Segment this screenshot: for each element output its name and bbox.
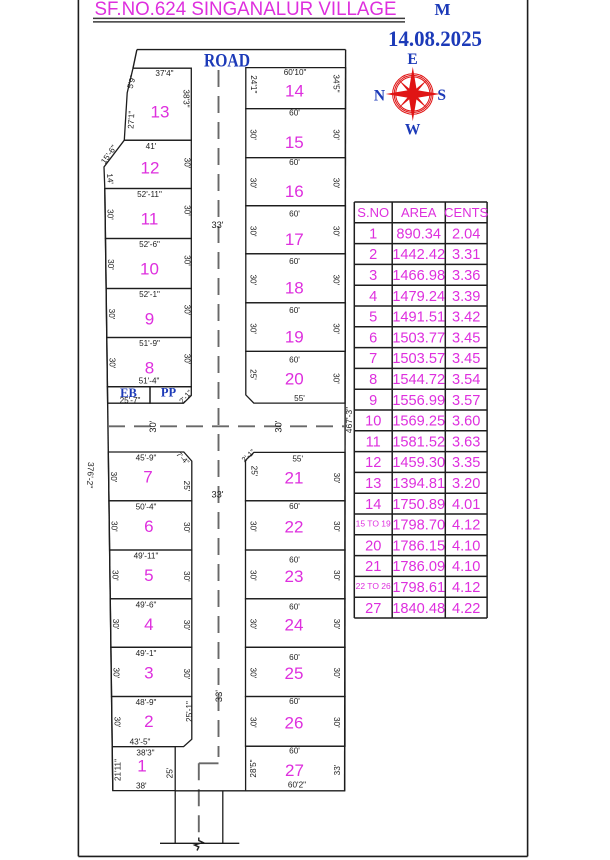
- svg-text:60': 60': [289, 356, 300, 365]
- svg-text:27: 27: [285, 761, 304, 780]
- svg-text:18: 18: [285, 278, 304, 297]
- svg-text:4.10: 4.10: [452, 538, 480, 554]
- svg-text:30': 30': [249, 178, 258, 189]
- svg-text:1: 1: [369, 226, 377, 242]
- svg-text:E: E: [407, 51, 417, 68]
- svg-text:30': 30': [249, 668, 258, 679]
- svg-text:467'-3": 467'-3": [344, 407, 354, 433]
- svg-text:25'-7": 25'-7": [120, 396, 141, 405]
- svg-text:1442.42: 1442.42: [392, 247, 445, 263]
- svg-text:8: 8: [369, 372, 377, 388]
- svg-text:30': 30': [112, 668, 121, 679]
- svg-text:49'-1": 49'-1": [136, 649, 157, 658]
- svg-text:1581.52: 1581.52: [392, 434, 445, 450]
- svg-text:60': 60': [289, 209, 300, 218]
- svg-text:20: 20: [365, 538, 381, 554]
- svg-text:33': 33': [214, 690, 224, 702]
- svg-text:3.31: 3.31: [452, 247, 480, 263]
- svg-text:PP: PP: [161, 385, 177, 399]
- svg-text:25': 25': [182, 481, 191, 492]
- svg-text:5: 5: [369, 310, 377, 326]
- svg-text:3.54: 3.54: [452, 372, 480, 388]
- svg-text:30': 30': [249, 619, 258, 630]
- svg-text:30': 30': [332, 521, 341, 532]
- svg-text:1544.72: 1544.72: [392, 372, 445, 388]
- svg-text:2: 2: [144, 712, 153, 731]
- svg-text:33': 33': [211, 220, 223, 230]
- svg-text:9: 9: [145, 310, 154, 329]
- svg-text:30': 30': [332, 473, 341, 484]
- svg-text:30': 30': [332, 619, 341, 630]
- svg-text:1503.77: 1503.77: [392, 330, 445, 346]
- svg-text:13: 13: [151, 103, 170, 122]
- svg-text:5: 5: [144, 566, 153, 585]
- svg-text:11: 11: [141, 210, 159, 229]
- svg-text:1394.81: 1394.81: [392, 476, 445, 492]
- svg-text:30': 30': [106, 259, 115, 270]
- svg-text:14': 14': [105, 173, 115, 185]
- svg-text:27'1": 27'1": [126, 110, 136, 129]
- svg-text:21: 21: [365, 559, 381, 575]
- svg-text:38'3": 38'3": [182, 89, 191, 107]
- svg-text:1503.57: 1503.57: [392, 351, 445, 367]
- svg-text:51'-4": 51'-4": [139, 377, 160, 386]
- svg-text:3.60: 3.60: [452, 414, 480, 430]
- svg-text:27: 27: [365, 601, 381, 617]
- svg-text:7'-4": 7'-4": [174, 450, 191, 467]
- svg-text:1798.61: 1798.61: [392, 580, 445, 596]
- svg-text:3.35: 3.35: [452, 455, 480, 471]
- svg-text:23: 23: [285, 567, 304, 586]
- svg-text:30': 30': [249, 521, 258, 532]
- svg-text:60': 60': [289, 257, 300, 266]
- svg-text:4.12: 4.12: [452, 518, 480, 534]
- svg-text:7: 7: [369, 351, 377, 367]
- svg-text:13: 13: [365, 476, 381, 492]
- svg-text:11: 11: [366, 434, 381, 450]
- svg-text:3: 3: [144, 663, 153, 682]
- svg-text:1786.15: 1786.15: [392, 538, 445, 554]
- svg-text:34'5": 34'5": [331, 74, 340, 92]
- svg-text:30': 30': [182, 669, 191, 680]
- svg-text:3.20: 3.20: [452, 476, 480, 492]
- svg-text:3.39: 3.39: [452, 289, 480, 305]
- svg-text:3: 3: [369, 268, 377, 284]
- svg-text:3.63: 3.63: [452, 434, 480, 450]
- svg-text:30': 30': [110, 521, 119, 532]
- svg-text:30': 30': [182, 522, 191, 533]
- svg-text:2.04: 2.04: [452, 226, 480, 242]
- svg-text:30': 30': [183, 158, 192, 169]
- svg-text:24'1": 24'1": [249, 75, 258, 93]
- svg-text:25'-1": 25'-1": [185, 701, 194, 722]
- svg-text:3.57: 3.57: [452, 393, 480, 409]
- svg-text:55': 55': [294, 394, 305, 403]
- svg-text:30': 30': [249, 129, 258, 140]
- svg-text:2'-1": 2'-1": [240, 447, 257, 464]
- svg-text:15: 15: [285, 133, 304, 152]
- svg-text:25': 25': [249, 369, 258, 380]
- svg-text:4.12: 4.12: [452, 580, 480, 596]
- svg-text:W: W: [405, 122, 421, 139]
- svg-text:7: 7: [143, 468, 152, 487]
- svg-text:60': 60': [289, 556, 300, 565]
- svg-text:60': 60': [289, 697, 300, 706]
- svg-text:3.36: 3.36: [452, 268, 480, 284]
- svg-text:CENTS: CENTS: [444, 205, 488, 220]
- svg-text:38'3": 38'3": [136, 748, 154, 757]
- svg-text:24: 24: [285, 616, 304, 635]
- svg-text:38': 38': [136, 782, 147, 791]
- svg-text:2: 2: [369, 247, 377, 263]
- svg-text:30': 30': [183, 305, 192, 316]
- svg-text:30': 30': [182, 620, 191, 631]
- svg-text:16: 16: [285, 182, 304, 201]
- svg-text:1750.89: 1750.89: [392, 497, 445, 513]
- svg-text:N: N: [374, 87, 385, 104]
- svg-text:14: 14: [285, 82, 304, 101]
- svg-text:30': 30': [109, 472, 118, 483]
- svg-text:890.34: 890.34: [396, 226, 441, 242]
- svg-text:22: 22: [285, 518, 304, 537]
- svg-text:60': 60': [289, 746, 300, 755]
- svg-text:1466.98: 1466.98: [392, 268, 445, 284]
- svg-text:30': 30': [249, 226, 258, 237]
- svg-text:1459.30: 1459.30: [392, 455, 445, 471]
- svg-text:3.45: 3.45: [452, 351, 480, 367]
- svg-text:1840.48: 1840.48: [392, 601, 445, 617]
- svg-text:30': 30': [332, 717, 341, 728]
- svg-text:60': 60': [289, 108, 300, 117]
- svg-text:60': 60': [289, 158, 300, 167]
- svg-text:5'9": 5'9": [126, 74, 138, 90]
- svg-text:S.NO: S.NO: [357, 205, 389, 220]
- svg-text:1798.70: 1798.70: [392, 518, 445, 534]
- svg-text:33': 33': [333, 764, 342, 775]
- svg-text:30': 30': [107, 309, 116, 320]
- svg-text:37'4": 37'4": [155, 69, 173, 78]
- svg-text:60': 60': [289, 602, 300, 611]
- svg-text:ROAD: ROAD: [204, 51, 250, 72]
- svg-text:M: M: [434, 0, 450, 19]
- svg-text:1: 1: [137, 757, 146, 776]
- svg-text:1479.24: 1479.24: [392, 289, 445, 305]
- svg-text:376'-2": 376'-2": [85, 462, 96, 489]
- svg-text:3.42: 3.42: [452, 310, 480, 326]
- svg-text:55': 55': [292, 455, 303, 464]
- svg-text:4.22: 4.22: [452, 601, 480, 617]
- svg-text:60'10": 60'10": [284, 68, 307, 77]
- svg-text:60': 60': [289, 653, 300, 662]
- svg-text:30': 30': [249, 323, 258, 334]
- svg-text:30': 30': [332, 570, 341, 581]
- svg-text:30': 30': [183, 354, 192, 365]
- svg-text:30': 30': [108, 358, 117, 369]
- svg-text:14: 14: [365, 497, 381, 513]
- svg-text:30': 30': [249, 717, 258, 728]
- svg-text:41': 41': [146, 142, 157, 151]
- svg-text:45'-9": 45'-9": [136, 454, 157, 463]
- svg-text:22 TO 26: 22 TO 26: [356, 581, 391, 591]
- svg-text:4.01: 4.01: [452, 497, 480, 513]
- svg-text:60': 60': [289, 502, 300, 511]
- svg-text:30': 30': [332, 323, 341, 334]
- svg-text:30': 30': [182, 571, 191, 582]
- svg-text:52'-1": 52'-1": [139, 290, 160, 299]
- svg-text:30': 30': [332, 129, 341, 140]
- svg-text:30': 30': [332, 373, 341, 384]
- svg-text:30': 30': [183, 205, 192, 216]
- svg-text:49'-6": 49'-6": [136, 600, 157, 609]
- svg-text:6: 6: [369, 330, 377, 346]
- svg-text:49'-11": 49'-11": [134, 552, 159, 561]
- svg-text:30': 30': [249, 570, 258, 581]
- svg-text:30': 30': [332, 668, 341, 679]
- svg-text:4: 4: [369, 289, 377, 305]
- svg-text:25': 25': [166, 767, 175, 778]
- svg-text:10: 10: [140, 260, 159, 279]
- svg-text:52'-11": 52'-11": [137, 190, 162, 199]
- svg-text:1786.09: 1786.09: [392, 559, 445, 575]
- svg-text:AREA: AREA: [401, 205, 437, 220]
- svg-text:60'2": 60'2": [288, 781, 306, 790]
- svg-text:30': 30': [332, 178, 341, 189]
- svg-text:30': 30': [332, 274, 341, 285]
- svg-text:14.08.2025: 14.08.2025: [388, 26, 482, 51]
- svg-text:25': 25': [249, 466, 258, 477]
- svg-text:21'11": 21'11": [114, 759, 123, 781]
- svg-text:48'-9": 48'-9": [136, 698, 157, 707]
- svg-text:30': 30': [112, 717, 121, 728]
- svg-text:30': 30': [106, 209, 115, 220]
- svg-text:50'-4": 50'-4": [136, 502, 157, 511]
- svg-text:1491.51: 1491.51: [392, 310, 445, 326]
- svg-text:1569.25: 1569.25: [392, 414, 445, 430]
- svg-text:30': 30': [273, 420, 283, 432]
- svg-text:19: 19: [285, 327, 304, 346]
- svg-text:21: 21: [285, 469, 304, 488]
- svg-text:1556.99: 1556.99: [392, 393, 445, 409]
- svg-text:10: 10: [365, 414, 381, 430]
- svg-text:30': 30': [332, 226, 341, 237]
- svg-text:SF.NO.624 SINGANALUR VILLAGE: SF.NO.624 SINGANALUR VILLAGE: [95, 0, 397, 20]
- svg-text:30': 30': [111, 619, 120, 630]
- svg-text:43'-5": 43'-5": [130, 738, 151, 747]
- svg-text:9: 9: [369, 393, 377, 409]
- svg-text:6: 6: [144, 517, 153, 536]
- svg-text:8: 8: [145, 359, 154, 378]
- svg-text:4.10: 4.10: [452, 559, 480, 575]
- svg-text:30': 30': [110, 570, 119, 581]
- svg-text:28'5": 28'5": [249, 759, 258, 777]
- svg-text:26: 26: [285, 713, 304, 732]
- svg-text:3.45: 3.45: [452, 330, 480, 346]
- svg-text:25: 25: [285, 664, 304, 683]
- svg-text:30': 30': [183, 255, 192, 266]
- svg-text:52'-6": 52'-6": [139, 240, 160, 249]
- svg-text:51'-9": 51'-9": [139, 339, 160, 348]
- svg-text:30': 30': [148, 420, 158, 432]
- svg-text:33': 33': [211, 490, 223, 500]
- svg-text:15 TO 19: 15 TO 19: [356, 519, 391, 529]
- svg-text:17: 17: [285, 230, 304, 249]
- svg-text:S: S: [437, 87, 446, 104]
- svg-text:20: 20: [285, 370, 304, 389]
- svg-text:12: 12: [365, 455, 381, 471]
- svg-text:60': 60': [289, 306, 300, 315]
- svg-text:15'-6": 15'-6": [99, 143, 118, 165]
- svg-text:4: 4: [144, 615, 153, 634]
- svg-text:30': 30': [249, 274, 258, 285]
- svg-text:12: 12: [141, 159, 160, 178]
